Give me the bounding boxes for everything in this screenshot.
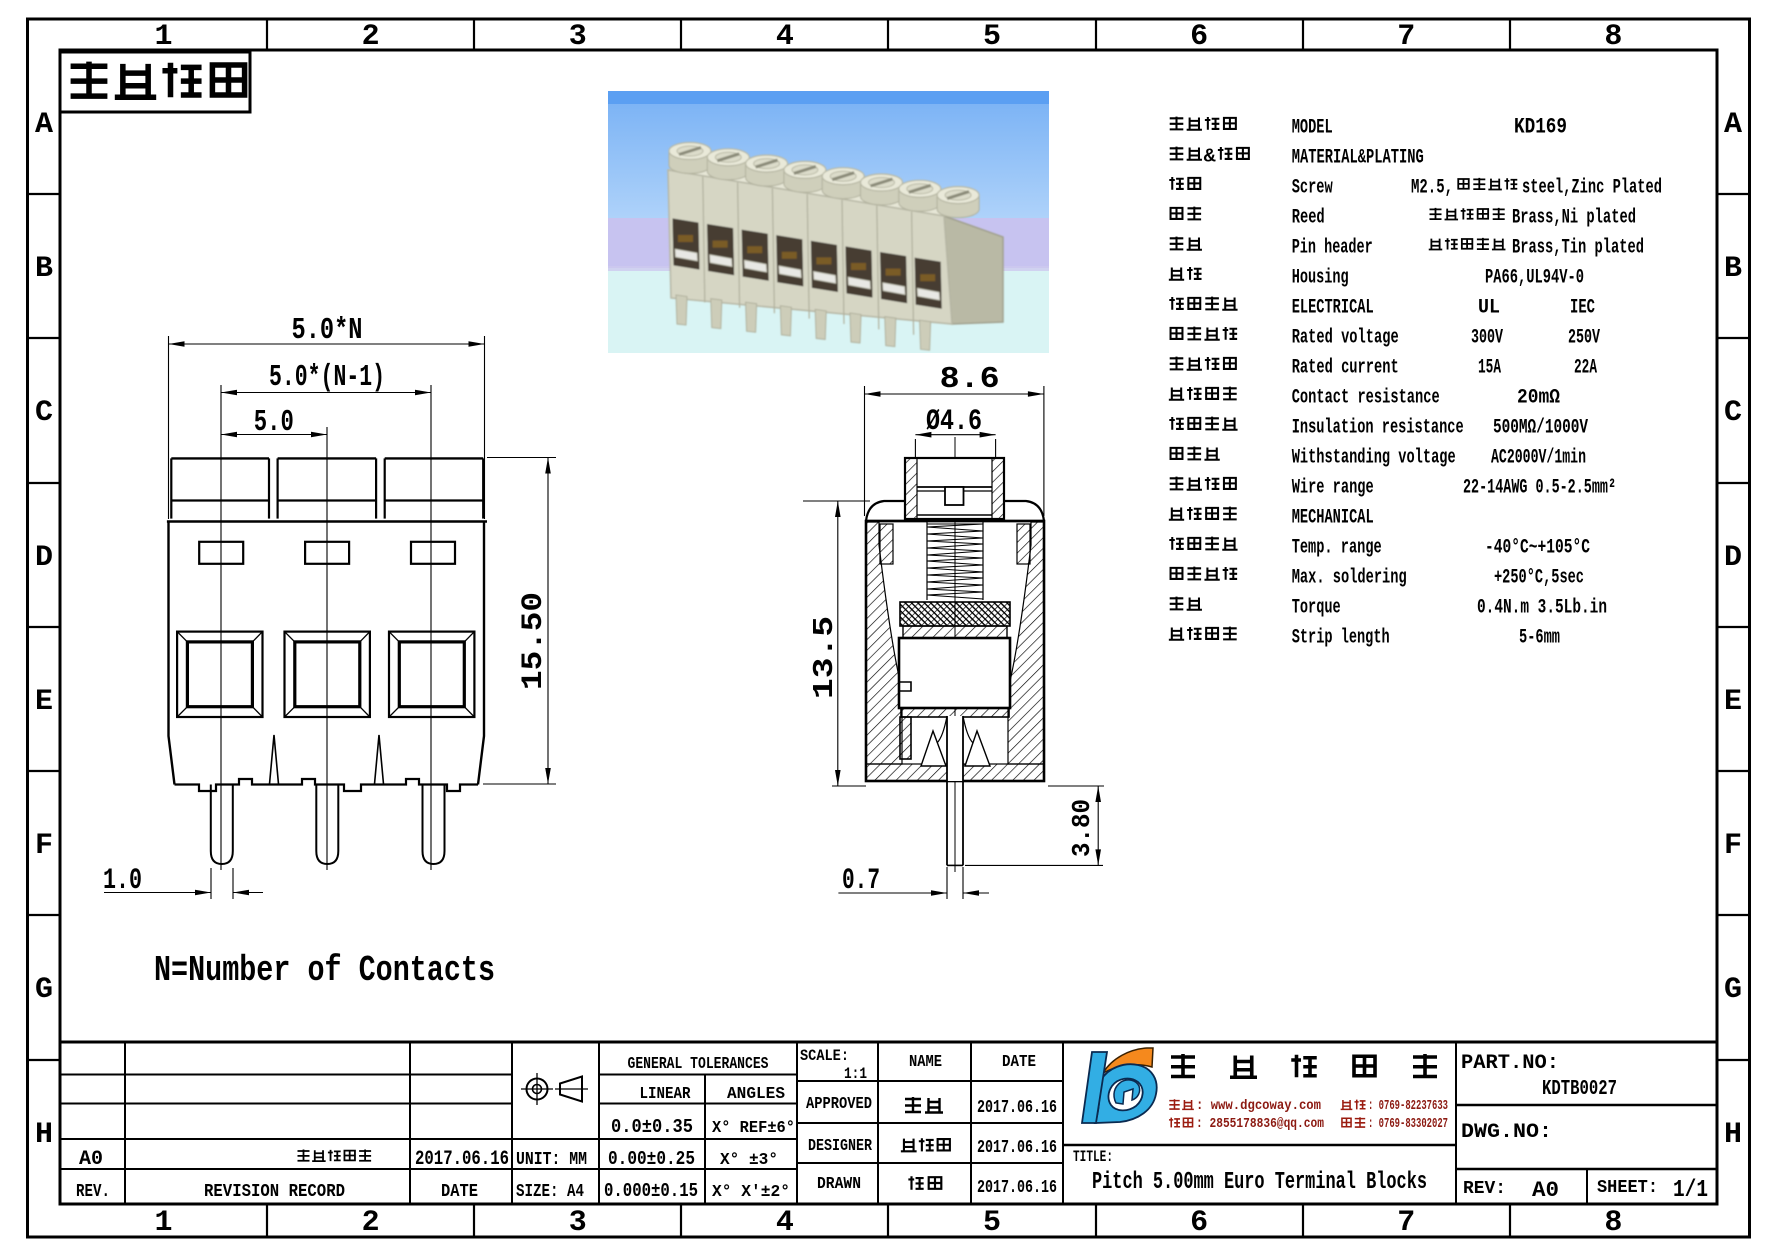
- svg-text:Brass,Tin plated: Brass,Tin plated: [1512, 236, 1644, 259]
- svg-text:F: F: [35, 829, 53, 863]
- svg-text:C: C: [35, 396, 53, 430]
- svg-text:DATE: DATE: [1002, 1053, 1036, 1072]
- svg-text:2017.06.16: 2017.06.16: [977, 1178, 1057, 1198]
- svg-text:MECHANICAL: MECHANICAL: [1292, 506, 1374, 529]
- svg-text:REV.: REV.: [76, 1182, 110, 1202]
- svg-text:B: B: [1724, 252, 1742, 286]
- svg-text:PA66,UL94V-0: PA66,UL94V-0: [1485, 266, 1584, 289]
- svg-text:D: D: [1724, 541, 1742, 575]
- svg-text:Contact resistance: Contact resistance: [1292, 386, 1440, 409]
- svg-text:REV:: REV:: [1463, 1179, 1506, 1199]
- svg-text:5.0*N: 5.0*N: [292, 313, 363, 348]
- svg-text:X° X'±2°: X° X'±2°: [712, 1183, 790, 1202]
- svg-text:PART.NO:: PART.NO:: [1461, 1052, 1559, 1075]
- svg-text:A0: A0: [79, 1148, 103, 1171]
- svg-text:A0: A0: [1532, 1178, 1559, 1203]
- svg-text:2017.06.16: 2017.06.16: [415, 1148, 509, 1171]
- svg-text:SCALE:: SCALE:: [800, 1047, 849, 1065]
- svg-text:2017.06.16: 2017.06.16: [977, 1138, 1057, 1158]
- svg-text:: 0769-83302027: : 0769-83302027: [1368, 1116, 1448, 1132]
- svg-text:4: 4: [776, 20, 794, 54]
- svg-text:IEC: IEC: [1570, 296, 1595, 319]
- svg-text:22-14AWG 0.5-2.5mm²: 22-14AWG 0.5-2.5mm²: [1463, 476, 1616, 499]
- svg-text:5: 5: [983, 20, 1001, 54]
- svg-text:8.6: 8.6: [940, 362, 1000, 397]
- svg-text:Rated current: Rated current: [1292, 356, 1399, 379]
- svg-text:15A: 15A: [1478, 356, 1501, 379]
- svg-text:1/1: 1/1: [1673, 1177, 1708, 1204]
- svg-text:6: 6: [1190, 1206, 1208, 1240]
- svg-text:DESIGNER: DESIGNER: [808, 1137, 873, 1156]
- svg-text:2: 2: [362, 1206, 380, 1240]
- svg-text:500MΩ/1000V: 500MΩ/1000V: [1493, 416, 1588, 439]
- svg-text:: 0769-82237633: : 0769-82237633: [1368, 1098, 1448, 1114]
- svg-text:Withstanding voltage: Withstanding voltage: [1292, 446, 1456, 469]
- svg-text:Insulation resistance: Insulation resistance: [1292, 416, 1464, 439]
- svg-text:NAME: NAME: [909, 1053, 942, 1072]
- svg-text:G: G: [1724, 973, 1742, 1007]
- svg-text:1: 1: [154, 1206, 172, 1240]
- svg-text:D: D: [35, 541, 53, 575]
- svg-text:C: C: [1724, 396, 1742, 430]
- svg-text:Pin header: Pin header: [1292, 236, 1373, 259]
- svg-text:KDTB0027: KDTB0027: [1542, 1078, 1617, 1101]
- svg-text:Ø4.6: Ø4.6: [926, 405, 982, 439]
- svg-text:GENERAL TOLERANCES: GENERAL TOLERANCES: [628, 1055, 769, 1074]
- svg-text:X° ±3°: X° ±3°: [720, 1151, 778, 1170]
- svg-text:Max. soldering: Max. soldering: [1292, 566, 1407, 589]
- svg-text:DRAWN: DRAWN: [817, 1175, 861, 1194]
- svg-text:DATE: DATE: [441, 1182, 478, 1202]
- svg-text:0.0±0.35: 0.0±0.35: [611, 1116, 693, 1138]
- svg-text:SHEET:: SHEET:: [1597, 1178, 1658, 1198]
- svg-text:0.00±0.25: 0.00±0.25: [608, 1148, 695, 1170]
- svg-text:5: 5: [983, 1206, 1001, 1240]
- svg-text:ANGLES: ANGLES: [727, 1085, 785, 1104]
- svg-text:0.4N.m 3.5Lb.in: 0.4N.m 3.5Lb.in: [1477, 596, 1607, 619]
- svg-text:2017.06.16: 2017.06.16: [977, 1098, 1057, 1118]
- svg-text:LINEAR: LINEAR: [640, 1085, 692, 1104]
- svg-text:5.0*(N-1): 5.0*(N-1): [269, 360, 385, 395]
- svg-text:1.0: 1.0: [103, 864, 142, 898]
- svg-text:Wire range: Wire range: [1292, 476, 1374, 499]
- svg-text:Torque: Torque: [1292, 596, 1341, 619]
- svg-text:: 2855178836@qq.com: : 2855178836@qq.com: [1196, 1116, 1324, 1132]
- svg-text:0.000±0.15: 0.000±0.15: [604, 1180, 698, 1202]
- svg-text:Reed: Reed: [1292, 206, 1325, 229]
- svg-text:B: B: [35, 252, 53, 286]
- svg-text:F: F: [1724, 829, 1742, 863]
- svg-text:Brass,Ni plated: Brass,Ni plated: [1512, 206, 1636, 229]
- svg-text:A: A: [35, 108, 53, 142]
- svg-text:UL: UL: [1478, 296, 1500, 319]
- svg-text:N=Number of Contacts: N=Number of Contacts: [154, 950, 495, 991]
- svg-text:7: 7: [1397, 1206, 1415, 1240]
- svg-text:ELECTRICAL: ELECTRICAL: [1292, 296, 1374, 319]
- svg-text:UNIT: MM: UNIT: MM: [516, 1150, 587, 1170]
- svg-text:6: 6: [1190, 20, 1208, 54]
- svg-text:Rated voltage: Rated voltage: [1292, 326, 1399, 349]
- svg-text:E: E: [35, 685, 53, 719]
- svg-text:Pitch 5.00mm Euro Terminal Blo: Pitch 5.00mm Euro Terminal Blocks: [1092, 1169, 1427, 1196]
- svg-text:&: &: [1204, 145, 1217, 167]
- svg-text:-40°C~+105°C: -40°C~+105°C: [1485, 536, 1590, 559]
- svg-text:15.50: 15.50: [517, 592, 551, 690]
- svg-text:+250°C,5sec: +250°C,5sec: [1494, 566, 1584, 589]
- svg-text:E: E: [1724, 685, 1742, 719]
- svg-text:AC2000V/1min: AC2000V/1min: [1491, 446, 1586, 469]
- svg-text:steel,Zinc Plated: steel,Zinc Plated: [1522, 176, 1662, 199]
- svg-text:MODEL: MODEL: [1292, 116, 1333, 139]
- svg-text:250V: 250V: [1568, 326, 1600, 349]
- svg-text:13.5: 13.5: [808, 616, 841, 699]
- svg-text:A: A: [1724, 108, 1742, 142]
- svg-text:8: 8: [1604, 20, 1622, 54]
- svg-text:H: H: [1724, 1118, 1742, 1152]
- svg-text:1: 1: [154, 20, 172, 54]
- svg-text:22A: 22A: [1574, 356, 1597, 379]
- svg-text:8: 8: [1604, 1206, 1622, 1240]
- svg-text:MATERIAL&PLATING: MATERIAL&PLATING: [1292, 146, 1424, 169]
- svg-text:5-6mm: 5-6mm: [1519, 626, 1560, 649]
- svg-text:3: 3: [569, 1206, 587, 1240]
- svg-text:REVISION RECORD: REVISION RECORD: [204, 1182, 345, 1202]
- svg-text:SIZE: A4: SIZE: A4: [516, 1182, 584, 1202]
- svg-text:4: 4: [776, 1206, 794, 1240]
- svg-text:Temp. range: Temp. range: [1292, 536, 1382, 559]
- svg-text:G: G: [35, 973, 53, 1007]
- svg-text:300V: 300V: [1471, 326, 1503, 349]
- svg-text:Housing: Housing: [1292, 266, 1349, 289]
- svg-text:KD169: KD169: [1514, 114, 1567, 139]
- svg-text:H: H: [35, 1118, 53, 1152]
- svg-text:TITLE:: TITLE:: [1073, 1148, 1113, 1166]
- svg-text:APPROVED: APPROVED: [806, 1095, 872, 1114]
- svg-text:7: 7: [1397, 20, 1415, 54]
- svg-text:3: 3: [569, 20, 587, 54]
- svg-text:DWG.NO:: DWG.NO:: [1461, 1121, 1552, 1144]
- svg-text:2: 2: [362, 20, 380, 54]
- svg-text:: www.dgcoway.com: : www.dgcoway.com: [1196, 1098, 1321, 1114]
- svg-text:Strip length: Strip length: [1292, 626, 1390, 649]
- svg-text:0.7: 0.7: [842, 864, 880, 898]
- svg-text:1:1: 1:1: [844, 1065, 867, 1083]
- svg-text:Screw: Screw: [1292, 176, 1333, 199]
- svg-text:20mΩ: 20mΩ: [1517, 386, 1560, 409]
- svg-text:X° REF±6°: X° REF±6°: [712, 1119, 795, 1138]
- svg-text:M2.5,: M2.5,: [1411, 176, 1453, 199]
- svg-text:3.80: 3.80: [1067, 799, 1097, 857]
